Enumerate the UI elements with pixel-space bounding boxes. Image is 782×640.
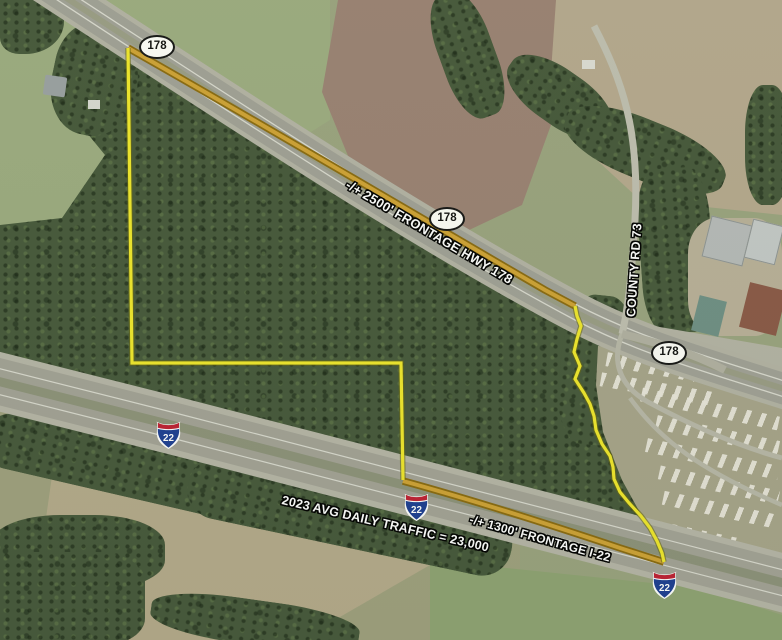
roads-and-parcel-overlay: [0, 0, 782, 640]
hwy-178-shield-middle-number: 178: [437, 213, 456, 225]
aerial-parcel-map: -/+ 2500' FRONTAGE HWY 178 COUNTY RD 73 …: [0, 0, 782, 640]
i22-shield-left: 22: [154, 419, 183, 450]
interstate-22: [0, 365, 782, 599]
hwy-178-shield-middle: 178: [429, 207, 465, 231]
i22-shield-bottom-number: 22: [659, 583, 670, 594]
hwy-178-shield-right: 178: [651, 341, 687, 365]
hwy-178-shield-top-number: 178: [147, 41, 166, 53]
i22-shield-bottom: 22: [650, 569, 679, 600]
i22-shield-middle-number: 22: [411, 505, 422, 516]
hwy-178-shield-top: 178: [139, 35, 175, 59]
i22-shield-left-number: 22: [163, 433, 174, 444]
i22-shield-middle: 22: [402, 491, 431, 522]
hwy-178-shield-right-number: 178: [659, 347, 678, 359]
